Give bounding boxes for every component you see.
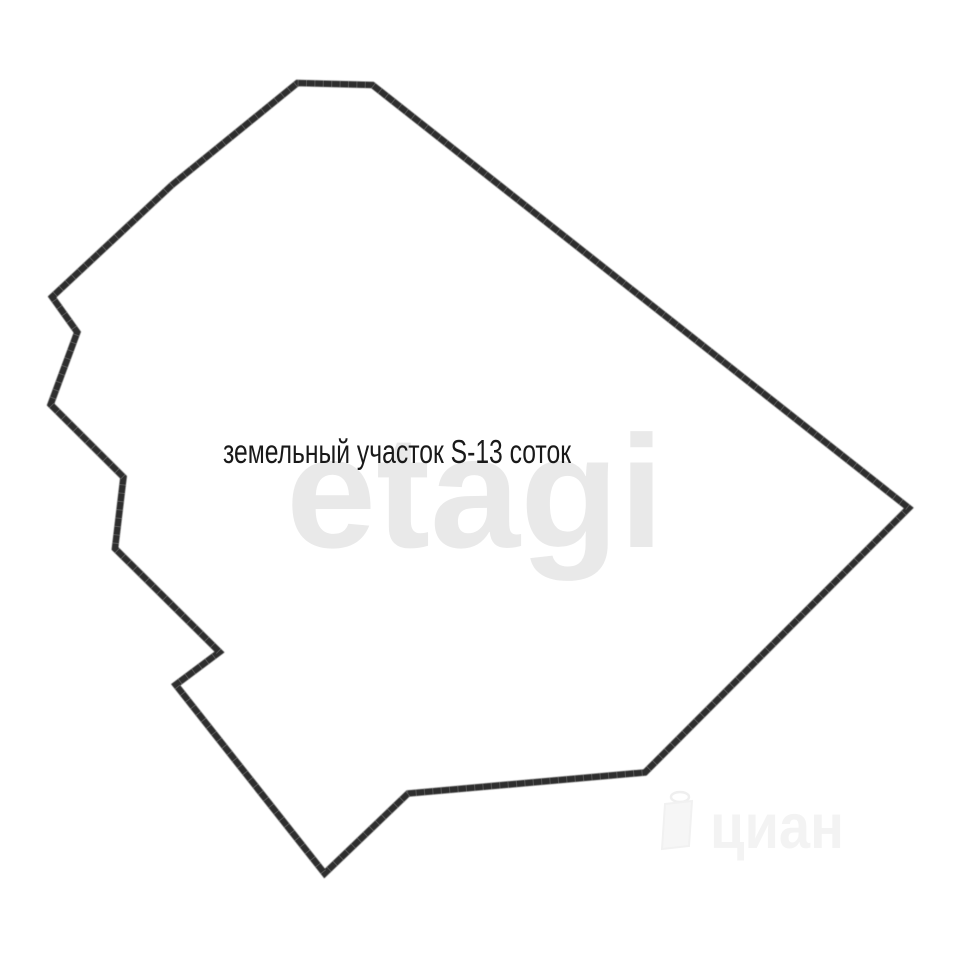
svg-text:etagi: etagi: [286, 402, 664, 581]
svg-text:циан: циан: [710, 792, 844, 862]
svg-text:земельный участок S-13 соток: земельный участок S-13 соток: [223, 434, 571, 471]
